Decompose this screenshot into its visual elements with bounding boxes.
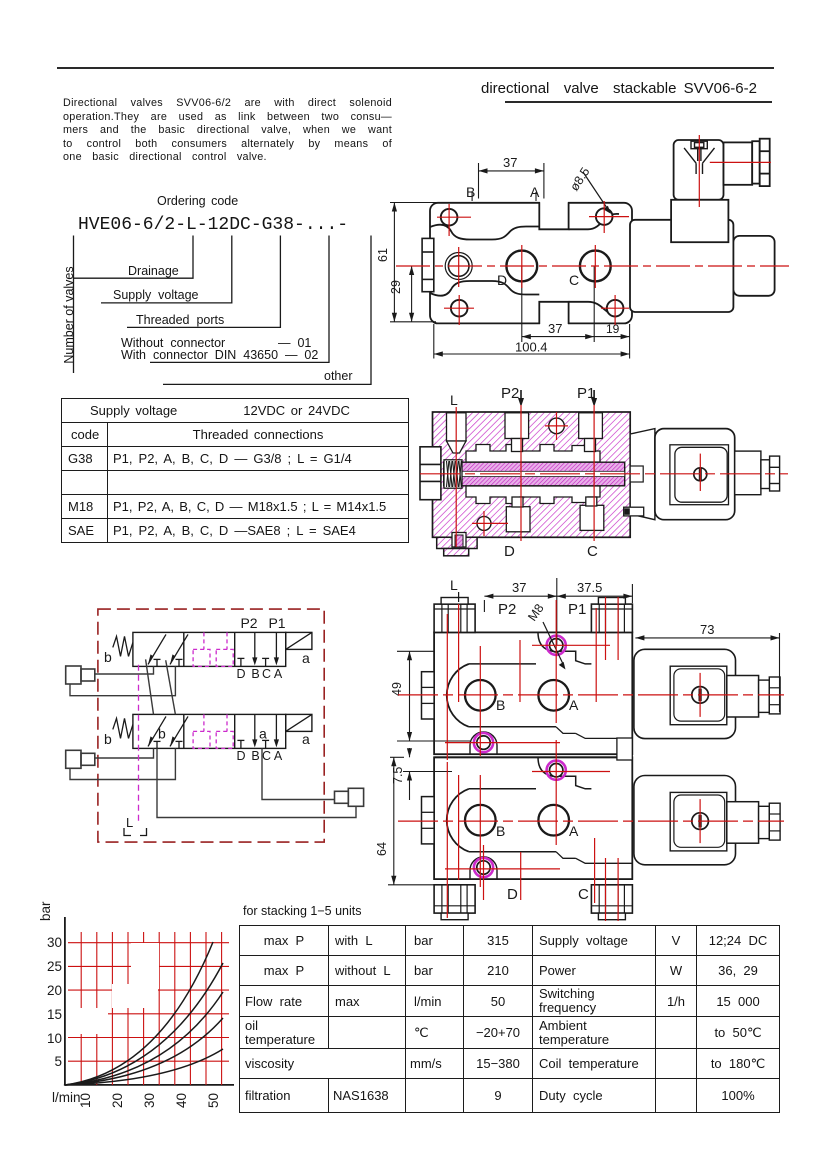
svg-text:64: 64 <box>375 842 389 856</box>
svg-text:l/min: l/min <box>52 1090 81 1105</box>
svg-text:B: B <box>496 823 505 839</box>
svg-text:P1: P1 <box>577 385 595 402</box>
svg-text:D: D <box>497 272 507 288</box>
svg-text:P1: P1 <box>568 601 586 618</box>
svg-text:a: a <box>302 650 310 666</box>
svg-text:30: 30 <box>47 935 62 950</box>
svg-text:a: a <box>259 725 267 741</box>
svg-text:C: C <box>262 749 271 763</box>
svg-text:40: 40 <box>174 1093 189 1108</box>
svg-text:C: C <box>587 543 598 560</box>
svg-text:a: a <box>302 731 310 747</box>
svg-text:100.4: 100.4 <box>515 340 548 355</box>
svg-text:bar: bar <box>38 901 53 921</box>
svg-text:ø8.5: ø8.5 <box>567 165 592 194</box>
svg-text:61: 61 <box>376 248 390 262</box>
svg-text:L: L <box>450 392 458 408</box>
svg-text:b: b <box>104 731 112 747</box>
svg-text:37: 37 <box>548 321 562 336</box>
svg-text:50: 50 <box>206 1093 221 1108</box>
svg-text:D: D <box>236 667 245 681</box>
svg-text:29: 29 <box>389 280 403 294</box>
svg-text:10: 10 <box>47 1031 62 1046</box>
svg-text:73: 73 <box>700 622 714 637</box>
svg-text:P2: P2 <box>498 601 516 618</box>
svg-text:A: A <box>569 823 579 839</box>
svg-text:A: A <box>530 184 540 200</box>
svg-text:L: L <box>450 577 458 593</box>
svg-text:C: C <box>569 272 579 288</box>
svg-text:15: 15 <box>47 1007 62 1022</box>
svg-text:b: b <box>104 649 112 665</box>
svg-text:L: L <box>126 815 133 830</box>
svg-text:5: 5 <box>54 1054 62 1069</box>
svg-text:M8: M8 <box>525 601 546 623</box>
svg-text:C: C <box>578 886 589 903</box>
svg-text:B: B <box>496 697 505 713</box>
svg-text:P1: P1 <box>268 615 285 631</box>
svg-text:37: 37 <box>503 155 517 170</box>
svg-text:25: 25 <box>47 959 62 974</box>
svg-text:A: A <box>274 667 283 681</box>
svg-text:37.5: 37.5 <box>577 580 602 595</box>
svg-text:7.5: 7.5 <box>391 767 405 784</box>
svg-text:D: D <box>236 749 245 763</box>
svg-text:D: D <box>507 886 518 903</box>
svg-text:B: B <box>251 667 259 681</box>
svg-text:19: 19 <box>606 322 620 336</box>
svg-text:C: C <box>262 667 271 681</box>
svg-text:B: B <box>251 749 259 763</box>
svg-text:49: 49 <box>390 682 404 696</box>
svg-text:P2: P2 <box>501 385 519 402</box>
svg-text:P2: P2 <box>240 615 257 631</box>
svg-text:37: 37 <box>512 580 526 595</box>
svg-text:b: b <box>158 725 166 741</box>
svg-text:B: B <box>466 184 475 200</box>
svg-text:20: 20 <box>47 983 62 998</box>
svg-text:D: D <box>504 543 515 560</box>
svg-text:A: A <box>569 697 579 713</box>
svg-text:A: A <box>274 749 283 763</box>
svg-text:20: 20 <box>110 1093 125 1108</box>
svg-text:10: 10 <box>78 1093 93 1108</box>
svg-text:30: 30 <box>142 1093 157 1108</box>
